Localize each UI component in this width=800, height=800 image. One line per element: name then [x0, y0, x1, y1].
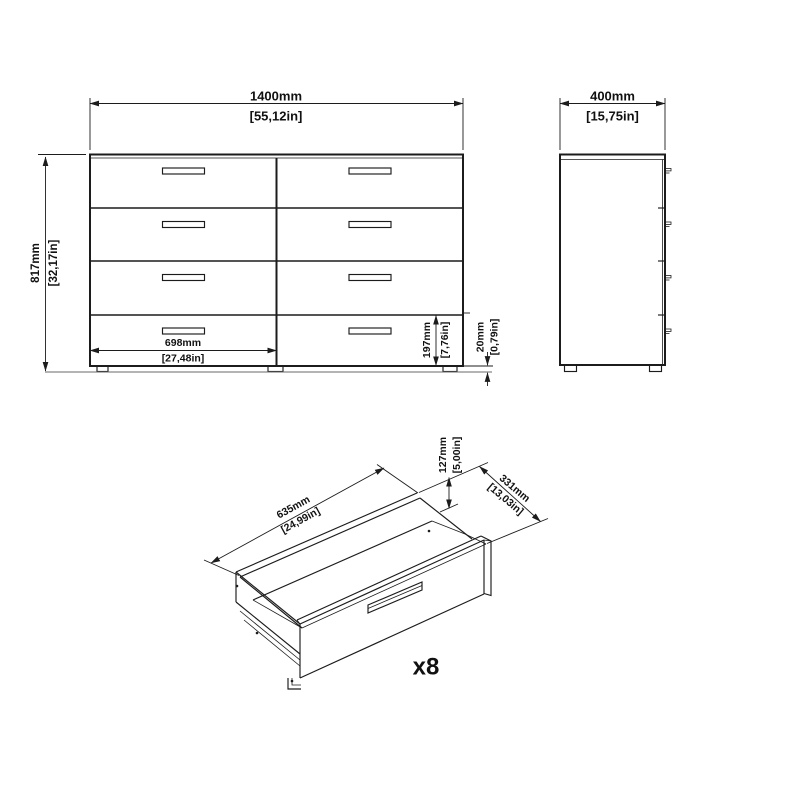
extension-line — [204, 560, 239, 576]
dimension-drawing: 1400mm [55,12in] 817mm [32,17in] 698mm [… — [0, 0, 800, 800]
drawer-height-in: [5,00in] — [451, 437, 463, 474]
foot-height-in: [0,79in] — [489, 319, 501, 356]
drawer-handle — [163, 328, 205, 334]
drawer-quantity-label: x8 — [413, 654, 440, 681]
drawer-handle — [163, 222, 205, 228]
front-height-dimension: 817mm [32,17in] — [30, 155, 86, 372]
drawer-detail-depth-dimension: 331mm [13,03in] — [480, 467, 549, 544]
front-width-in: [55,12in] — [250, 109, 303, 124]
side-depth-dimension: 400mm [15,75in] — [560, 89, 665, 151]
drawer-height-mm: 127mm — [437, 437, 449, 473]
extension-line — [487, 519, 548, 544]
drawer-width-in: [27,48in] — [162, 353, 205, 365]
drawer-detail-view: 635mm [24,99in] 127mm [5,00in] 331mm [13… — [204, 437, 548, 689]
side-depth-in: [15,75in] — [586, 109, 639, 124]
drawer-width-dimension: 698mm [27,48in] — [90, 337, 277, 365]
technical-drawing-page: 1400mm [55,12in] 817mm [32,17in] 698mm [… — [0, 0, 800, 800]
side-cabinet-outline — [560, 155, 665, 366]
front-height-mm: 817mm — [30, 243, 42, 283]
drawer-handle — [163, 275, 205, 281]
drawer-handle — [349, 168, 391, 174]
side-view: 400mm [15,75in] — [560, 89, 671, 372]
drawer-handle-iso — [368, 582, 422, 613]
front-width-mm: 1400mm — [250, 89, 302, 104]
front-view: 1400mm [55,12in] 817mm [32,17in] 698mm [… — [30, 89, 501, 387]
rail-front-bracket — [288, 678, 301, 689]
front-width-dimension: 1400mm [55,12in] — [90, 89, 463, 151]
foot-height-mm: 20mm — [475, 322, 487, 352]
side-depth-mm: 400mm — [590, 89, 635, 104]
drawer-handle — [349, 222, 391, 228]
drawer-isometric-art — [236, 493, 491, 689]
drawer-handle — [349, 275, 391, 281]
foot-height-dimension: 20mm [0,79in] — [463, 319, 501, 386]
drawer-height-mm: 197mm — [421, 322, 433, 358]
drawer-detail-height-dimension: 127mm [5,00in] — [419, 437, 488, 512]
drawer-detail-width-dimension: 635mm [24,99in] — [204, 465, 418, 576]
front-height-in: [32,17in] — [48, 240, 60, 287]
drawer-handle — [163, 168, 205, 174]
drawer-handle — [349, 328, 391, 334]
drawer-height-in: [7,76in] — [439, 322, 451, 359]
drawer-width-mm: 698mm — [165, 337, 201, 349]
